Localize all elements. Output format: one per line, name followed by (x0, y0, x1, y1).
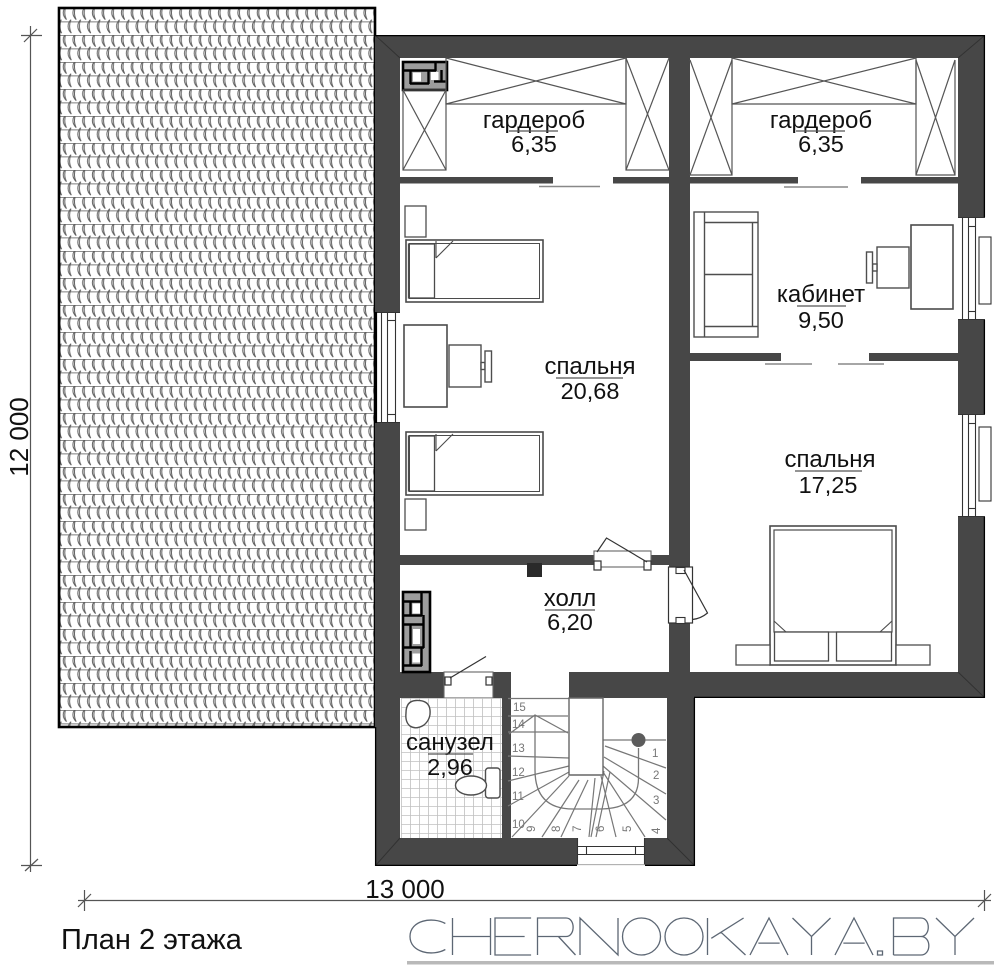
svg-text:17,25: 17,25 (799, 472, 858, 498)
svg-text:2,96: 2,96 (427, 754, 473, 780)
svg-text:12 000: 12 000 (4, 397, 34, 477)
svg-text:20,68: 20,68 (561, 378, 620, 404)
svg-text:спальня: спальня (784, 446, 875, 473)
svg-text:9,50: 9,50 (798, 307, 844, 333)
svg-text:1: 1 (652, 748, 658, 760)
svg-text:6,35: 6,35 (511, 131, 557, 157)
svg-text:14: 14 (512, 719, 525, 731)
svg-text:13 000: 13 000 (365, 874, 445, 904)
svg-text:6: 6 (595, 826, 607, 832)
svg-text:10: 10 (512, 819, 525, 831)
svg-text:спальня: спальня (544, 353, 635, 380)
svg-text:гардероб: гардероб (770, 107, 872, 134)
svg-text:8: 8 (551, 826, 563, 832)
svg-text:12: 12 (512, 767, 525, 779)
svg-text:13: 13 (512, 743, 525, 755)
svg-text:5: 5 (622, 826, 634, 832)
svg-text:2: 2 (653, 770, 659, 782)
svg-text:6,35: 6,35 (798, 131, 844, 157)
svg-text:9: 9 (526, 826, 538, 832)
svg-text:холл: холл (544, 585, 597, 612)
svg-text:4: 4 (651, 827, 663, 834)
svg-text:6,20: 6,20 (547, 609, 593, 635)
svg-text:санузел: санузел (406, 729, 494, 756)
svg-text:гардероб: гардероб (483, 107, 585, 134)
svg-text:11: 11 (512, 791, 524, 803)
svg-text:кабинет: кабинет (777, 281, 865, 308)
svg-text:3: 3 (653, 795, 659, 807)
svg-text:15: 15 (513, 702, 526, 714)
svg-text:7: 7 (572, 826, 584, 832)
svg-text:План 2 этажа: План 2 этажа (61, 924, 243, 956)
